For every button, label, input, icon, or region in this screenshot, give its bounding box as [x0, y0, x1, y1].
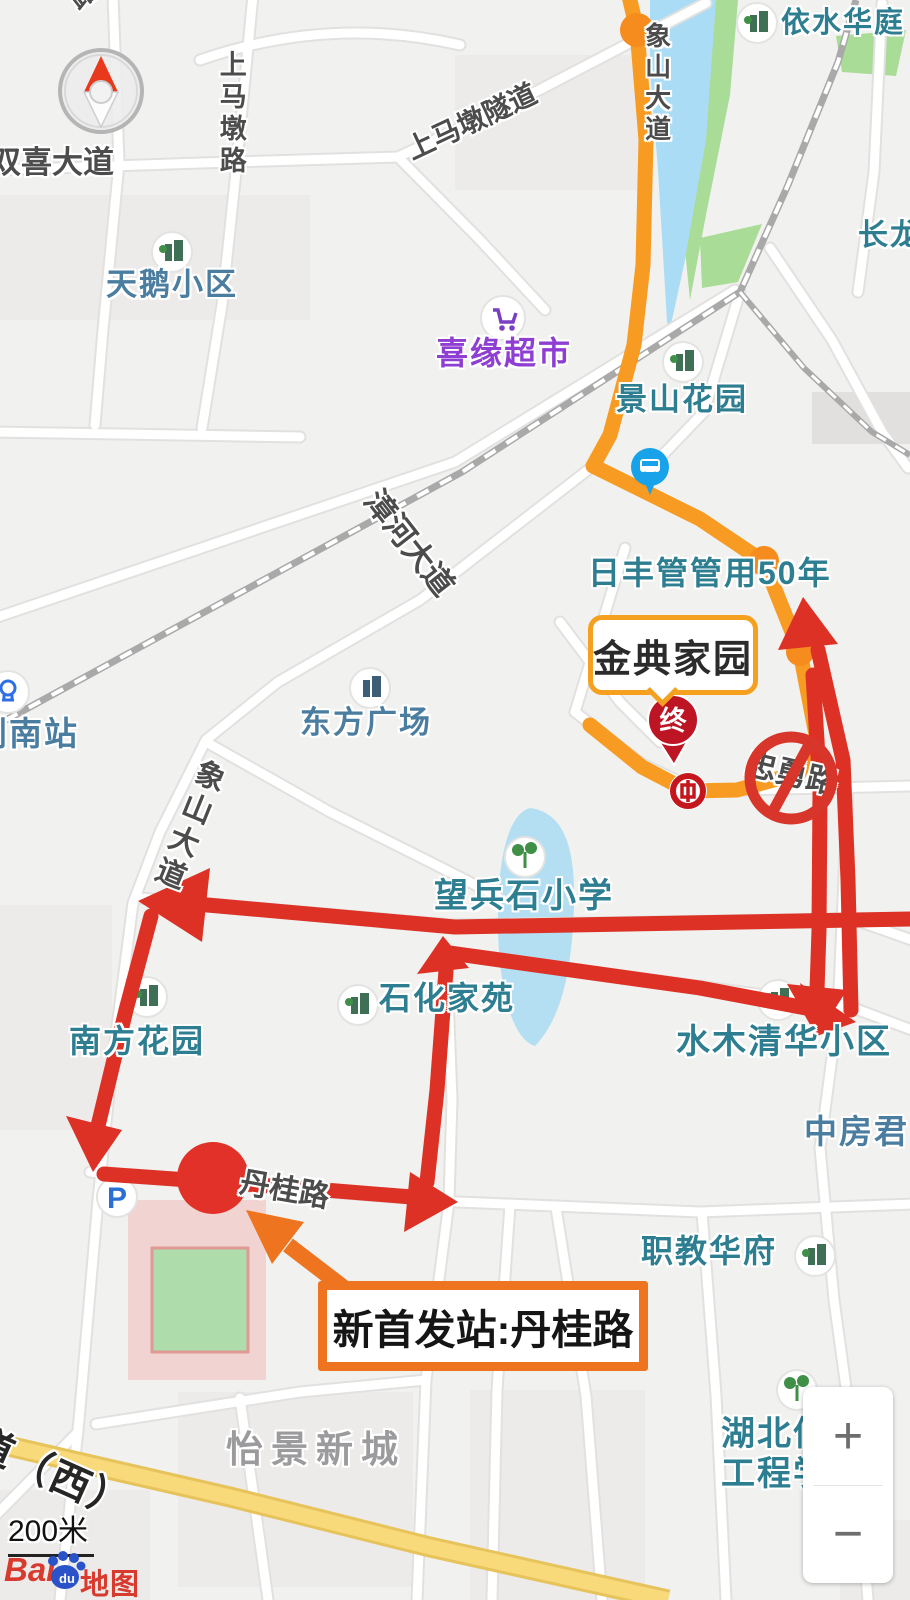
- building-icon-zhijiao: [795, 1236, 835, 1276]
- map-canvas[interactable]: P: [0, 0, 910, 1600]
- baidu-maps-logo: Bai du 地图: [4, 1549, 154, 1597]
- building-icon-yishui: [737, 3, 777, 43]
- pin-label: 终: [660, 705, 688, 736]
- terminus-loop-icon: [669, 772, 707, 810]
- new-first-stop-marker[interactable]: [177, 1142, 249, 1214]
- no-entry-sign: [738, 725, 848, 835]
- stadium: [128, 1200, 266, 1380]
- jindian-callout-box: 金典家园: [588, 615, 758, 695]
- building-icon-jingshan: [663, 342, 703, 382]
- building-icon-dongfang: [350, 668, 390, 708]
- zoom-out-button[interactable]: −: [803, 1486, 893, 1584]
- route-stop-dot: [620, 13, 654, 47]
- scale-label: 200米: [8, 1506, 94, 1550]
- new-start-callout-text: 新首发站:丹桂路: [333, 1296, 634, 1356]
- new-start-callout-box: 新首发站:丹桂路: [318, 1281, 648, 1371]
- building-icon-tiane: [152, 232, 192, 272]
- route-stop-dot: [749, 546, 779, 576]
- jindian-callout-text: 金典家园: [593, 628, 753, 683]
- compass-widget[interactable]: [56, 45, 146, 135]
- zoom-control: + −: [803, 1387, 893, 1583]
- svg-text:P: P: [107, 1182, 127, 1215]
- building-icon-shihua: [338, 985, 378, 1025]
- zoom-in-button[interactable]: +: [803, 1387, 893, 1485]
- logo-text-ditu: 地图: [80, 1561, 140, 1600]
- cart-icon-xiyuan: [481, 296, 525, 340]
- tree-icon-wangbingshi: [505, 837, 545, 877]
- logo-text-du: du: [59, 1571, 75, 1586]
